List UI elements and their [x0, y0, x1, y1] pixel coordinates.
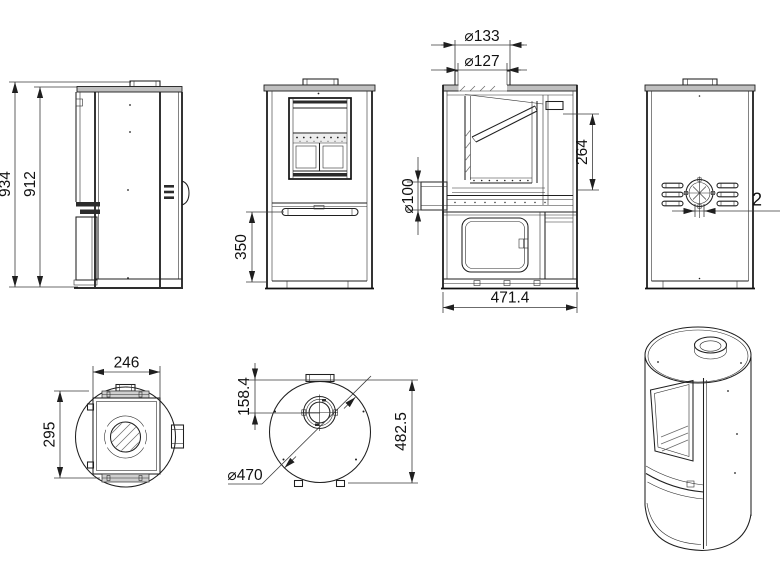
rear-elevation-view: 2 [645, 79, 780, 289]
top-foot-right [337, 481, 345, 487]
stove-drawing: 934 912 [0, 0, 780, 580]
iso-top-plate [645, 327, 751, 383]
dim-body-height: 912 [22, 171, 39, 197]
plan-base-dimensions: 246 295 [42, 355, 161, 479]
front-fire-door [289, 98, 351, 179]
front-body [264, 79, 375, 289]
side-flue-collar [130, 81, 160, 87]
front-handle-bar [282, 209, 358, 216]
technical-drawing-canvas: 934 912 [0, 0, 780, 580]
section-outlet-dimension: ⌀100 [400, 157, 447, 235]
side-door-handle [182, 181, 189, 205]
top-collar [306, 375, 334, 382]
cross-section-view: ⌀133 ⌀127 [400, 28, 599, 313]
iso-handle [687, 481, 694, 487]
dim-top-depth: 482.5 [393, 412, 410, 451]
dim-plan-width: 246 [114, 355, 140, 372]
front-elevation-view: 350 [233, 79, 375, 289]
side-top-plate [77, 87, 182, 93]
rear-offset-dimension: 2 [672, 190, 780, 218]
section-collar-dimensions: ⌀133 ⌀127 [431, 28, 527, 71]
rear-flue-outlet [683, 177, 716, 219]
plan-top-view: 158.4 482.5 ⌀470 [227, 363, 418, 487]
section-baffle [472, 106, 535, 137]
dim-collar-inner: ⌀127 [464, 53, 499, 70]
front-top-plate [264, 85, 375, 91]
dim-collar-outer: ⌀133 [464, 28, 499, 45]
side-elevation-body [74, 81, 189, 288]
side-vent-slots [164, 185, 174, 188]
front-log-store [272, 203, 367, 216]
front-flue-collar [303, 79, 338, 85]
plan-base-drawing [76, 385, 184, 488]
front-dimensions: 350 [233, 212, 284, 282]
dim-base-door-height: 350 [233, 234, 250, 260]
dim-flue-offset: 158.4 [236, 377, 253, 416]
dim-overall-height: 934 [0, 171, 14, 197]
section-base-door [462, 218, 528, 272]
rear-flue-collar [683, 79, 717, 85]
dim-rear-outlet: ⌀100 [400, 178, 417, 214]
side-lower-door [76, 217, 97, 280]
side-door-hinge-band [76, 202, 100, 207]
side-elevation-dimensions: 934 912 [0, 82, 131, 287]
side-elevation-view: 934 912 [0, 81, 189, 288]
top-foot-left [295, 481, 303, 487]
plan-flue-hatched [111, 422, 141, 452]
section-base [443, 196, 577, 286]
plan-rear-stub [172, 425, 184, 448]
dim-plan-depth: 295 [42, 422, 59, 448]
dim-body-diameter: ⌀470 [227, 467, 263, 484]
rear-vent-slots [662, 183, 738, 206]
isometric-view [645, 327, 751, 551]
iso-flue-collar [695, 337, 727, 353]
dim-offset-partial: 2 [752, 190, 762, 210]
dim-window-height: 264 [574, 139, 591, 165]
plan-firebox [93, 398, 160, 474]
rear-top-plate [645, 85, 755, 91]
section-depth-dimension: 471.4 [443, 290, 577, 314]
rear-body [645, 79, 755, 289]
section-right-dimension: 264 [563, 114, 599, 190]
plan-base-view: 246 295 [42, 355, 184, 488]
dim-depth: 471.4 [491, 290, 530, 307]
